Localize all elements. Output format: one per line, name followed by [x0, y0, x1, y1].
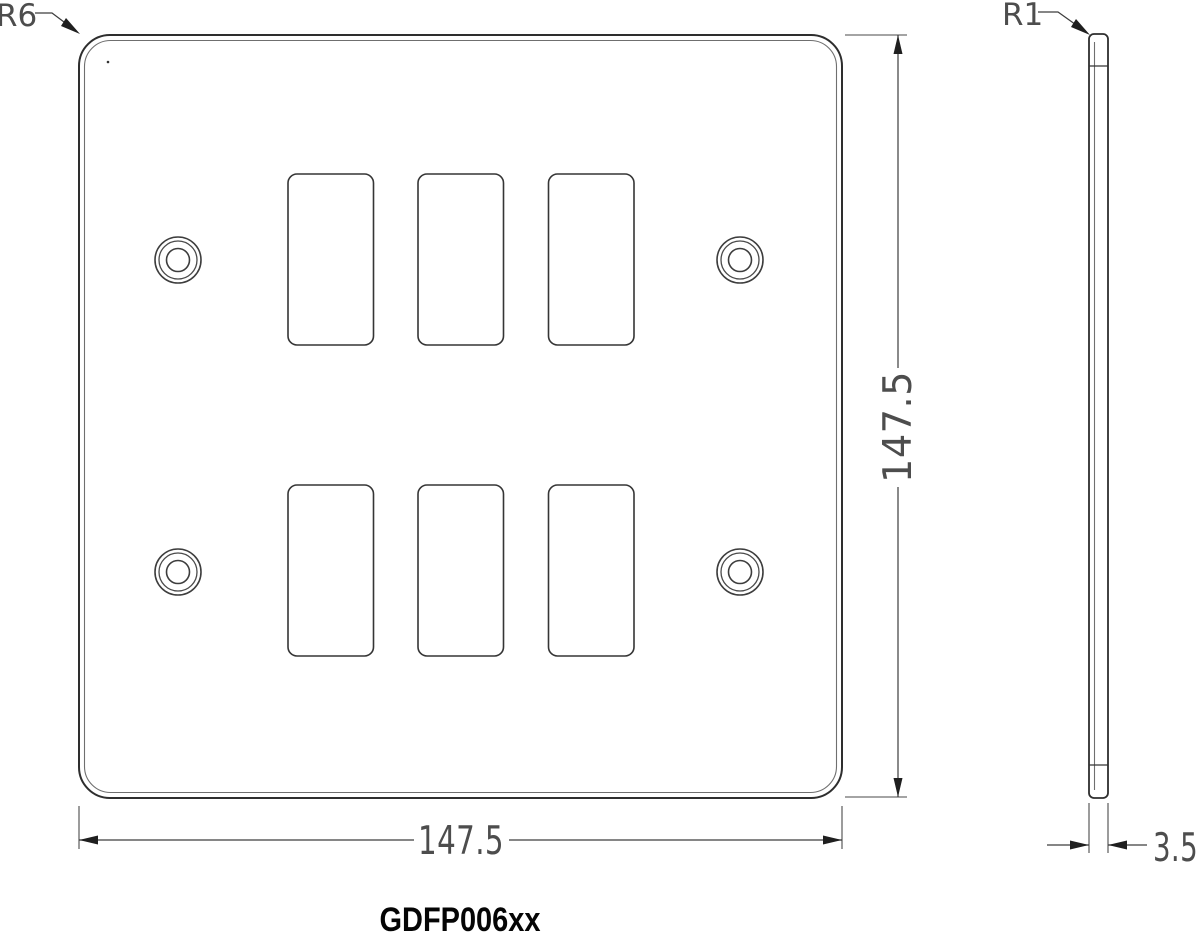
corner-radius-label: R6 — [0, 0, 37, 34]
thickness-arrowhead-right-icon — [1108, 841, 1127, 850]
part-number: GDFP006xx — [380, 901, 541, 936]
module-cutout-top-right — [549, 174, 635, 345]
faceplate-drawing: R6 147.5 147.5 — [0, 0, 1200, 936]
side-profile-outline — [1089, 34, 1108, 798]
width-dimension-text: 147.5 — [418, 819, 504, 864]
thickness-arrowhead-left-icon — [1070, 841, 1089, 850]
stray-mark-dot — [107, 61, 110, 64]
edge-radius-label: R1 — [1002, 0, 1043, 33]
height-arrowhead-top-icon — [894, 35, 903, 54]
thickness-dimension: 3.5 — [1047, 803, 1198, 871]
module-cutout-bottom-right — [549, 485, 635, 656]
width-arrowhead-right-icon — [823, 836, 842, 845]
module-cutout-top-center — [418, 174, 504, 345]
faceplate-side-view — [1089, 34, 1108, 798]
module-cutout-bottom-left — [288, 485, 374, 656]
faceplate-outline — [79, 35, 842, 798]
height-arrowhead-bottom-icon — [894, 778, 903, 797]
width-arrowhead-left-icon — [79, 836, 98, 845]
faceplate-front-view — [79, 35, 842, 798]
module-cutout-top-left — [288, 174, 374, 345]
edge-radius-arrowhead-icon — [1071, 19, 1090, 35]
height-dimension-text: 147.5 — [876, 371, 921, 483]
height-dimension: 147.5 — [845, 35, 921, 797]
corner-radius-arrowhead-icon — [61, 18, 80, 34]
thickness-dimension-text: 3.5 — [1153, 826, 1198, 871]
corner-radius-callout: R6 — [0, 0, 80, 34]
edge-radius-callout: R1 — [1002, 0, 1090, 35]
module-cutout-bottom-center — [418, 485, 504, 656]
width-dimension: 147.5 — [79, 806, 842, 864]
technical-drawing-canvas: R6 147.5 147.5 — [0, 0, 1200, 936]
